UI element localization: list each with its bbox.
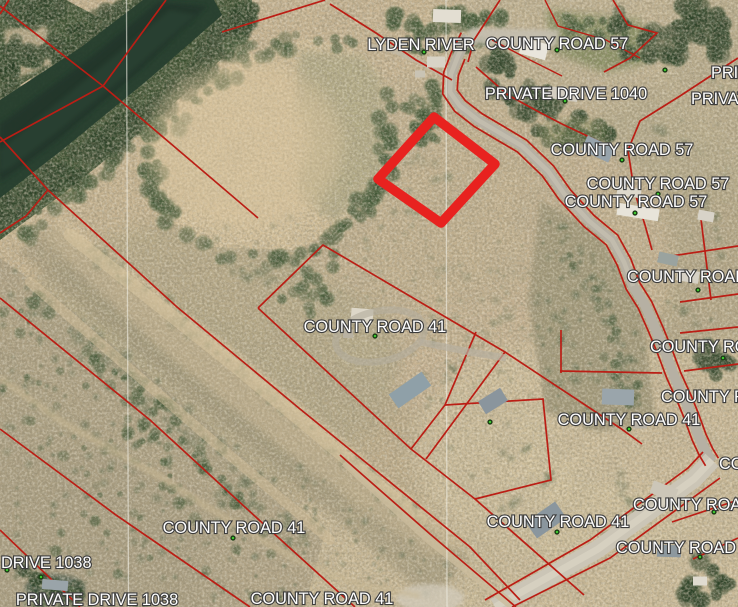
svg-text:COUNTY ROAD 41: COUNTY ROAD 41 bbox=[633, 496, 738, 514]
svg-text:COUNTY ROAD 57: COUNTY ROAD 57 bbox=[627, 268, 738, 286]
svg-text:COUNTY ROAD 57: COUNTY ROAD 57 bbox=[587, 175, 730, 193]
svg-text:PRIVATE DRIVE 1040: PRIVATE DRIVE 1040 bbox=[485, 85, 647, 103]
svg-text:LYDEN RIVER: LYDEN RIVER bbox=[367, 36, 474, 54]
svg-text:DRIVE 1038: DRIVE 1038 bbox=[1, 554, 92, 572]
svg-text:COUNTY ROAD: COUNTY ROAD bbox=[661, 388, 738, 406]
svg-text:COUNTY ROAD 41: COUNTY ROAD 41 bbox=[616, 539, 738, 557]
svg-text:COUNTY ROAD 41: COUNTY ROAD 41 bbox=[558, 411, 701, 429]
svg-text:COUNTY ROAD 41: COUNTY ROAD 41 bbox=[650, 338, 738, 356]
svg-text:COUNTY ROAD 57: COUNTY ROAD 57 bbox=[565, 193, 708, 211]
svg-text:COUNTY ROAD 57: COUNTY ROAD 57 bbox=[551, 141, 694, 159]
svg-text:COUNTY ROAD 41: COUNTY ROAD 41 bbox=[304, 318, 447, 336]
svg-text:COUNTY ROAD 41: COUNTY ROAD 41 bbox=[163, 519, 306, 537]
svg-text:COUNTY ROAD 41: COUNTY ROAD 41 bbox=[251, 590, 394, 607]
svg-text:PRIVATE DR: PRIVATE DR bbox=[691, 90, 738, 108]
svg-text:COUNTY ROAD 57: COUNTY ROAD 57 bbox=[486, 35, 629, 53]
svg-text:COUNTY: COUNTY bbox=[719, 455, 738, 473]
svg-text:PRIVATE: PRIVATE bbox=[711, 64, 738, 82]
svg-text:COUNTY ROAD 41: COUNTY ROAD 41 bbox=[487, 513, 630, 531]
svg-text:PRIVATE DRIVE 1038: PRIVATE DRIVE 1038 bbox=[16, 591, 178, 607]
